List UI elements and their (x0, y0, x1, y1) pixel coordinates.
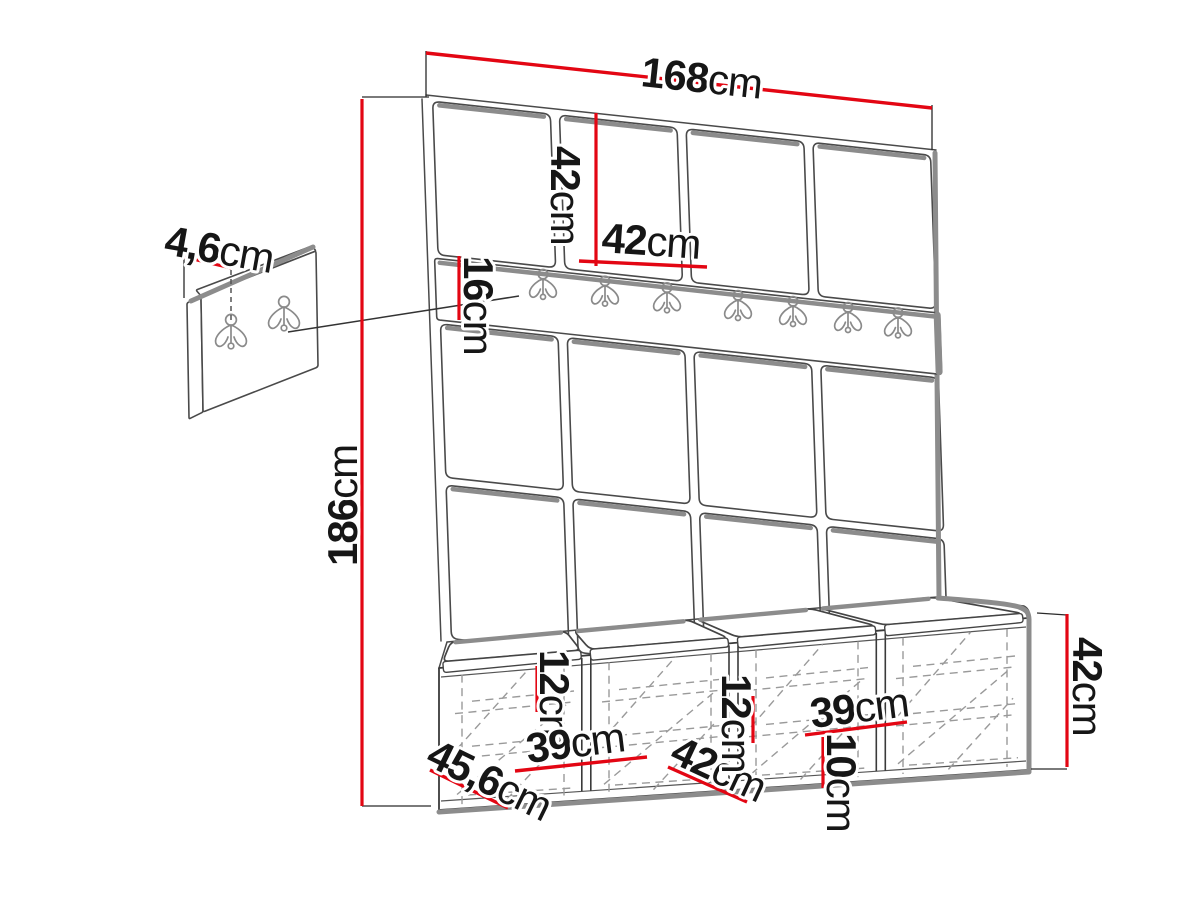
furniture-dimension-diagram: 168cm42cm42cm16cm186cm4,6cm12cm39cm45,6c… (0, 0, 1200, 899)
dim-panel_height-label: 42cm (542, 146, 589, 245)
dim-width_total-label: 168cm (639, 48, 764, 107)
wall-panel (686, 130, 809, 295)
wall-panel (813, 143, 936, 308)
furniture-dimension-diagram-page: 168cm42cm42cm16cm186cm4,6cm12cm39cm45,6c… (0, 0, 1200, 899)
dim-niche_top_right-label: 10cm (818, 733, 865, 832)
dim-accessory_depth-label: 4,6cm (161, 217, 277, 282)
dim-bench_height-label: 42cm (1064, 637, 1111, 736)
wall-panel (567, 338, 689, 503)
wall-panel (821, 366, 943, 531)
wall-panel (694, 352, 817, 517)
extension-line (1037, 613, 1067, 615)
rail-end-shadow (937, 315, 939, 372)
wall-panel (446, 486, 569, 651)
dim-niche_top_mid-label: 12cm (713, 674, 760, 773)
wall-panel (433, 102, 556, 267)
dim-panel_width-label: 42cm (600, 214, 702, 268)
dim-height_total-label: 186cm (319, 445, 366, 566)
dim-rail_height-label: 16cm (455, 256, 502, 355)
